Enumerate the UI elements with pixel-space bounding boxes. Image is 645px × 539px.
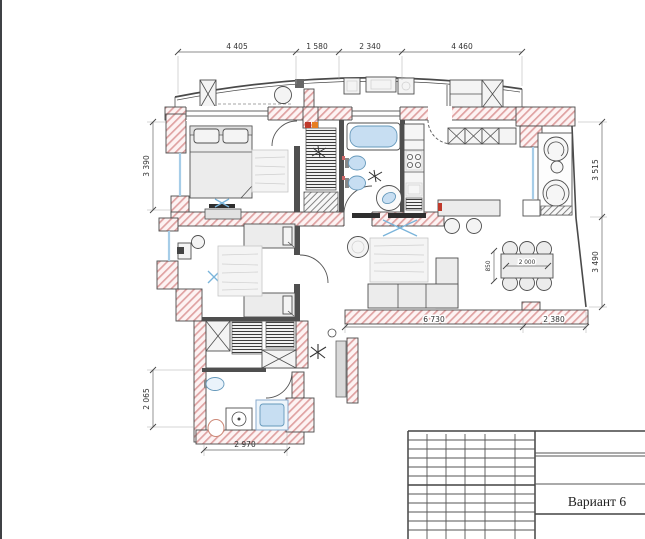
dim-left-1: 3 390 (142, 155, 151, 177)
sink-icon (345, 156, 366, 170)
round-hob-icon (543, 180, 569, 206)
dim-top-2: 1 580 (306, 42, 328, 51)
bedroom-rug-icon (252, 150, 288, 192)
kids-room-door-swing (300, 255, 328, 283)
media-unit-icon (352, 213, 380, 218)
pillow-icon (223, 129, 248, 143)
kids-rug-icon (218, 246, 262, 296)
figure-icon (368, 170, 382, 182)
walk-in-closet (304, 122, 338, 212)
dim-top-1: 4 405 (226, 42, 248, 51)
bar-stool-icon (467, 219, 482, 234)
kitchen-balcony-door-opening (428, 106, 452, 121)
toilet-icon (208, 420, 224, 437)
balcony-divider (304, 89, 314, 108)
master-bedroom (190, 126, 288, 219)
clothes-icon (305, 122, 311, 128)
dim-top-3: 2 340 (359, 42, 381, 51)
right-facade-wall (572, 126, 586, 307)
dim-bottom-left: 2 970 (234, 440, 256, 449)
dim-bottom-2: 2 380 (543, 315, 565, 324)
drawer-unit-icon (406, 198, 422, 210)
dim-top-4: 4 460 (451, 42, 473, 51)
dining-table-length-label: 2 000 (519, 260, 536, 266)
living-rug-icon (370, 238, 428, 282)
small-bathroom (204, 378, 288, 437)
clothes-icon (312, 122, 318, 128)
desk-equipment-icon (177, 247, 184, 254)
ceiling-lamp-icon (328, 329, 336, 337)
shower-cabin-icon (377, 186, 402, 211)
shower-icon (256, 400, 288, 430)
plant-icon (310, 344, 326, 359)
bench-icon (541, 206, 572, 215)
washing-machine-icon (226, 408, 252, 430)
tv-icon (209, 204, 235, 208)
desk-chair-icon (192, 236, 205, 249)
single-bed-icon (244, 224, 295, 248)
floor-plan-drawing: 2 000 850 (0, 0, 645, 539)
dining-table-width-label: 850 (486, 260, 492, 271)
entrance-door-leaf (336, 341, 346, 397)
variant-label: Вариант 6 (568, 494, 626, 509)
bathtub-icon (347, 123, 400, 150)
pillow-icon (194, 129, 219, 143)
bar-counter-icon (438, 200, 500, 216)
small-bathroom-door-swing (266, 372, 292, 398)
single-bed-icon (244, 293, 295, 317)
balcony-round-table-icon (275, 87, 292, 104)
title-block: Вариант 6 (408, 431, 645, 539)
dining-area: 2 000 850 (486, 242, 553, 291)
wall-cabinets-icon (448, 128, 516, 144)
bedroom-balcony-window (186, 106, 268, 121)
tv-icon (388, 213, 426, 218)
balcony-chair-icon (295, 79, 304, 88)
sink-icon (345, 176, 366, 190)
bathroom-window (352, 106, 400, 121)
bedroom-door-swing (272, 121, 297, 146)
hanger-rack-icon (266, 322, 294, 348)
dim-left-2: 2 065 (142, 388, 151, 410)
floor-plan-screenshot: 2 000 850 (0, 0, 645, 539)
dim-bottom-1: 6 730 (423, 315, 445, 324)
balcony-cabinet-right-icon (450, 80, 503, 108)
hall-wardrobe (206, 321, 296, 368)
corridor (310, 329, 346, 397)
hanger-rack-icon (232, 322, 262, 354)
balcony (175, 77, 522, 108)
bar-stool-icon (445, 219, 460, 234)
dim-right-2: 3 490 (591, 251, 600, 273)
tv-console-icon (205, 209, 241, 219)
balcony-cabinet-left-icon (200, 80, 216, 108)
dim-right-1: 3 515 (591, 159, 600, 181)
armchair-icon (348, 237, 369, 258)
shelf-unit-icon (304, 192, 338, 212)
hanger-rack-icon (306, 128, 336, 190)
sink-icon (204, 378, 224, 391)
balcony-bench-icon (344, 77, 414, 94)
main-bathroom (342, 123, 402, 211)
living-room (348, 213, 459, 308)
